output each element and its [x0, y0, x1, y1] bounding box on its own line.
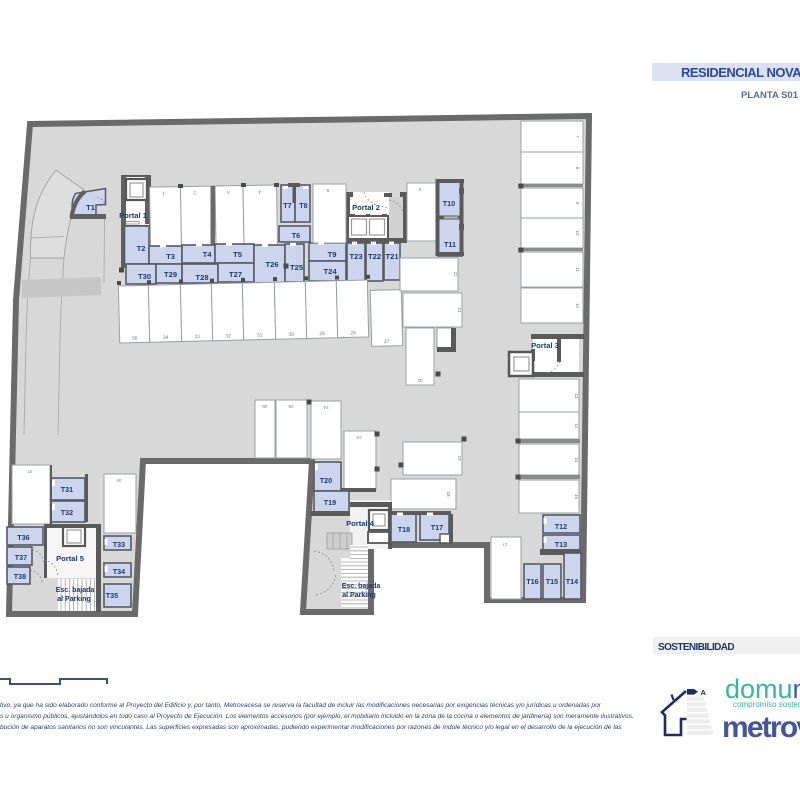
svg-text:T36: T36	[17, 533, 29, 542]
svg-text:T37: T37	[15, 553, 27, 562]
svg-text:compromiso sostenible: compromiso sostenible	[733, 700, 800, 709]
svg-text:9: 9	[326, 188, 329, 193]
svg-text:32: 32	[225, 333, 231, 339]
svg-text:T22: T22	[368, 252, 381, 261]
svg-text:T16: T16	[526, 577, 538, 586]
svg-text:37: 37	[27, 469, 33, 474]
svg-text:10: 10	[575, 230, 580, 236]
svg-text:36: 36	[116, 478, 122, 483]
svg-text:8: 8	[575, 167, 580, 170]
svg-text:26: 26	[262, 404, 268, 409]
svg-text:T31: T31	[61, 485, 73, 494]
svg-text:31: 31	[257, 333, 263, 339]
svg-text:11: 11	[575, 267, 580, 272]
svg-text:25: 25	[288, 404, 294, 409]
svg-text:T6: T6	[292, 231, 300, 240]
svg-text:T8: T8	[299, 201, 307, 210]
svg-text:22: 22	[453, 271, 458, 277]
svg-text:T20: T20	[320, 476, 332, 485]
svg-text:0: 0	[418, 187, 421, 192]
svg-text:SOSTENIBILIDAD: SOSTENIBILIDAD	[658, 642, 734, 653]
svg-text:16: 16	[574, 494, 579, 500]
svg-text:36: 36	[132, 336, 138, 342]
svg-text:14: 14	[574, 423, 579, 429]
svg-text:T19: T19	[324, 498, 336, 507]
svg-text:T4: T4	[203, 250, 213, 259]
svg-text:28: 28	[350, 330, 356, 336]
svg-text:27: 27	[384, 339, 390, 345]
svg-text:T25: T25	[290, 263, 304, 272]
svg-text:T13: T13	[555, 540, 567, 549]
svg-text:T5: T5	[233, 250, 243, 259]
svg-text:T12: T12	[555, 522, 567, 531]
svg-text:T24: T24	[323, 267, 337, 276]
svg-text:T14: T14	[566, 577, 578, 586]
svg-text:tivo, ya que ha sido elaborado: tivo, ya que ha sido elaborado conforme …	[0, 702, 602, 709]
svg-text:T7: T7	[283, 201, 291, 210]
svg-text:24: 24	[323, 405, 329, 410]
svg-text:T18: T18	[398, 525, 410, 534]
svg-text:T30: T30	[138, 272, 151, 281]
svg-text:30: 30	[288, 332, 294, 338]
svg-text:T1: T1	[86, 203, 96, 212]
svg-text:33: 33	[194, 334, 200, 340]
svg-text:12: 12	[575, 303, 580, 309]
svg-text:T33: T33	[113, 540, 125, 549]
svg-text:T15: T15	[546, 577, 558, 586]
svg-text:23: 23	[356, 435, 362, 440]
svg-text:T23: T23	[349, 252, 362, 261]
svg-text:metrova: metrova	[722, 711, 800, 744]
svg-text:T32: T32	[61, 508, 73, 517]
svg-text:bución de aparatos sanitarios: bución de aparatos sanitarios no son vin…	[0, 724, 622, 731]
svg-text:29: 29	[319, 331, 325, 337]
svg-text:Esc. bajada: Esc. bajada	[56, 587, 95, 594]
svg-text:T34: T34	[113, 567, 125, 576]
svg-text:Portal 4: Portal 4	[346, 519, 375, 528]
svg-text:17: 17	[502, 542, 508, 547]
svg-text:PLANTA S01: PLANTA S01	[741, 90, 799, 101]
svg-text:T9: T9	[328, 250, 337, 259]
svg-text:19: 19	[457, 455, 462, 461]
svg-text:T2: T2	[137, 244, 146, 253]
svg-text:Portal 1: Portal 1	[119, 211, 148, 220]
svg-text:21: 21	[457, 307, 462, 313]
svg-text:34: 34	[163, 335, 169, 341]
svg-text:T10: T10	[443, 199, 455, 208]
svg-text:Portal 5: Portal 5	[56, 554, 85, 563]
svg-text:T21: T21	[385, 252, 399, 261]
svg-text:3: 3	[227, 189, 230, 195]
svg-text:al Parking: al Parking	[57, 596, 90, 603]
svg-text:T17: T17	[431, 523, 443, 532]
svg-text:T27: T27	[229, 270, 242, 279]
svg-text:s u organismo públicos, ajustá: s u organismo públicos, ajustándolos en …	[0, 713, 634, 720]
svg-text:T29: T29	[164, 270, 177, 279]
svg-text:T3: T3	[166, 252, 175, 261]
svg-text:Portal 3: Portal 3	[531, 341, 559, 350]
svg-text:T26: T26	[265, 260, 278, 269]
svg-text:al Parking: al Parking	[342, 592, 375, 599]
svg-text:T11: T11	[444, 240, 456, 249]
svg-text:13: 13	[574, 393, 579, 399]
svg-text:15: 15	[574, 457, 579, 463]
svg-text:T28: T28	[195, 273, 208, 282]
svg-text:7: 7	[575, 135, 580, 138]
svg-text:RESIDENCIAL NOVAS: RESIDENCIAL NOVAS	[681, 65, 800, 80]
svg-text:1: 1	[162, 190, 165, 196]
svg-text:9: 9	[575, 202, 580, 205]
svg-text:20: 20	[417, 378, 423, 383]
svg-text:18: 18	[446, 491, 451, 497]
svg-text:2: 2	[193, 189, 196, 195]
svg-text:T38: T38	[14, 572, 26, 581]
svg-text:T35: T35	[106, 591, 118, 600]
svg-text:A: A	[701, 688, 707, 697]
svg-text:4: 4	[258, 188, 261, 194]
svg-text:Esc. bajada: Esc. bajada	[342, 583, 381, 590]
